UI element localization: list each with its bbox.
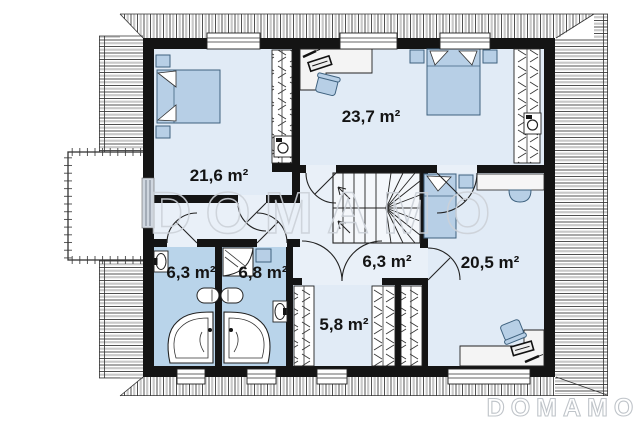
room-area-label: 6,3 m² [362, 252, 411, 271]
sink-icon [273, 301, 287, 322]
room-area-label: 5,8 m² [319, 315, 368, 334]
room-area-label: 6,8 m² [238, 263, 287, 282]
double-bed-icon [157, 70, 220, 123]
room-area-label: 23,7 m² [342, 107, 401, 126]
room-area-label: 20,5 m² [461, 253, 520, 272]
watermark-bottom: DOMAMO [487, 394, 640, 422]
double-bed-icon [427, 49, 480, 115]
floor-plan-drawing: 21,6 m² 23,7 m² 6,3 m² 6,8 m² 6,3 m² 5,8… [0, 0, 640, 423]
watermark-center: DOMAMO [150, 181, 505, 246]
balcony [64, 148, 144, 264]
floor-plan-page: 21,6 m² 23,7 m² 6,3 m² 6,8 m² 6,3 m² 5,8… [0, 0, 640, 423]
room-area-label: 6,3 m² [166, 263, 215, 282]
laundry-basket-icon [256, 249, 271, 262]
